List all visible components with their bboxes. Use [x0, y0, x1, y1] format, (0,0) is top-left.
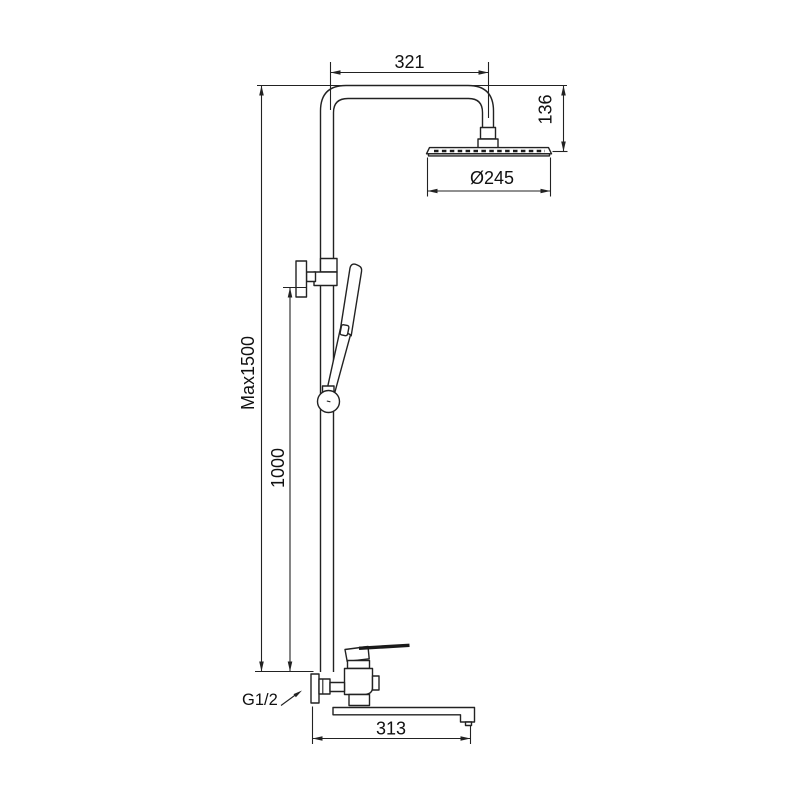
arrowhead: [428, 189, 438, 194]
slider-bracket: [296, 259, 337, 298]
dimension-slide-bar: 1000: [268, 288, 307, 672]
wall-escutcheon: [311, 674, 319, 703]
leader-line: [281, 695, 296, 706]
mixer-lever: [359, 645, 410, 648]
mixer-body: [345, 669, 373, 695]
dimension-head-diameter: Ø245: [428, 158, 551, 197]
arrowhead: [313, 736, 323, 741]
dimension-label: 1000: [268, 448, 288, 488]
rain-shower-head: [427, 148, 552, 156]
diverter-block: [349, 695, 370, 706]
arrowhead: [288, 288, 293, 298]
dimension-label: 136: [536, 94, 556, 124]
dimension-head-drop: 136: [536, 86, 568, 152]
dimension-label: Max1500: [238, 336, 258, 410]
dimension-label: Ø245: [470, 168, 514, 188]
dimension-label: 313: [376, 719, 406, 739]
arrowhead: [461, 736, 471, 741]
thread-label: G1/2: [242, 691, 278, 709]
arrowhead: [561, 86, 566, 96]
shower-system-dimension-drawing: 321 136 Ø245 Max1500 1000 G1/2: [0, 0, 800, 800]
technical-drawing-page: 321 136 Ø245 Max1500 1000 G1/2: [0, 0, 800, 800]
callout-inlet-thread: G1/2: [242, 691, 302, 710]
bracket-knob: [296, 261, 307, 297]
arrowhead: [288, 662, 293, 672]
dimension-max-height: Max1500: [238, 86, 314, 672]
hand-shower: [318, 264, 362, 412]
bracket-block-upper: [321, 259, 338, 273]
bracket-block-lower: [314, 272, 337, 286]
bracket-arm: [307, 272, 316, 282]
cartridge-collar: [348, 661, 370, 669]
rain-head-connector: [478, 128, 498, 149]
mixer-right-cap: [373, 676, 380, 690]
arrowhead: [259, 662, 264, 672]
head-rim: [429, 154, 550, 156]
arm-inner-line: [334, 99, 483, 673]
inlet-nut: [319, 679, 330, 694]
arrowhead: [561, 142, 566, 152]
arrowhead: [479, 70, 489, 75]
connector-nut: [481, 128, 496, 140]
arrowhead: [259, 86, 264, 96]
arrowhead: [331, 70, 341, 75]
aerator-nub: [466, 722, 472, 726]
arrowhead: [541, 189, 551, 194]
mixer-valve: [311, 645, 410, 705]
dimension-label: 321: [394, 52, 424, 72]
arm-outer-line: [321, 86, 494, 673]
hand-shower-handle: [327, 330, 350, 393]
riser-pipe-and-shower-arm: [321, 86, 494, 673]
inlet-connector: [330, 683, 345, 692]
hand-shower-button: [340, 324, 349, 336]
leader-arrowhead: [294, 691, 303, 698]
holder-knob-mark: [327, 401, 331, 402]
